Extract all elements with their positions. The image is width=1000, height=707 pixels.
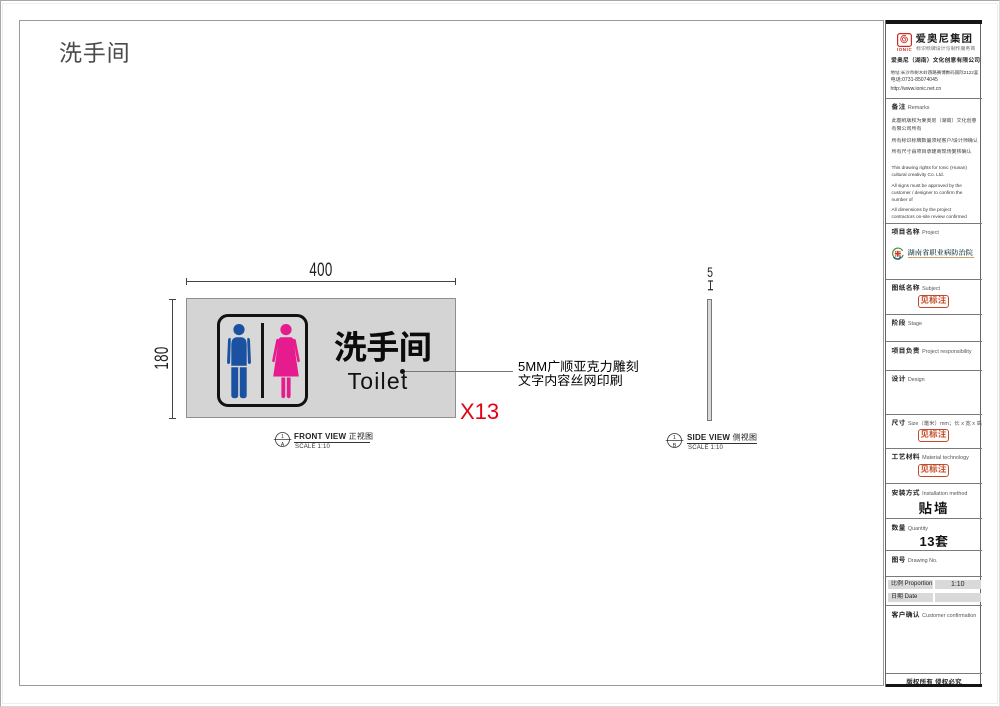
svg-text:B: B <box>673 443 677 449</box>
svg-text:1: 1 <box>673 435 676 441</box>
svg-text:1: 1 <box>281 434 284 440</box>
svg-text:A: A <box>281 442 285 448</box>
